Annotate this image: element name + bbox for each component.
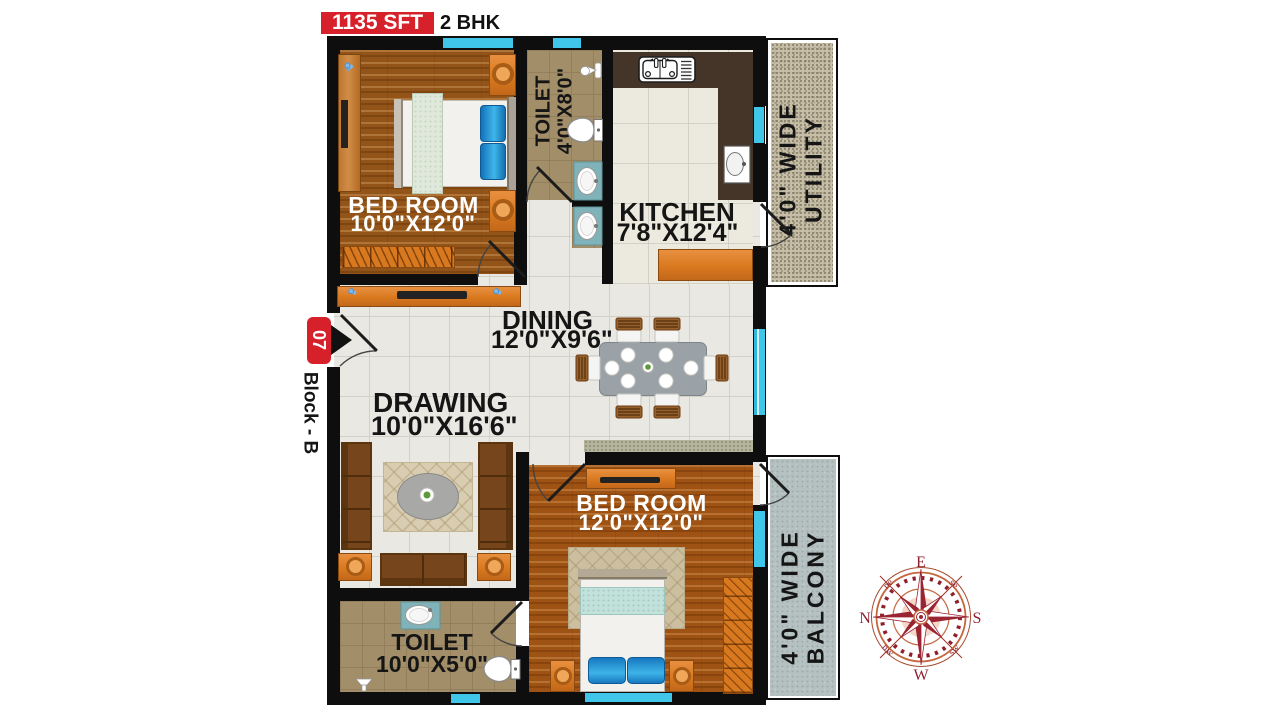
svg-text:S: S [973, 610, 982, 627]
svg-text:W: W [913, 667, 929, 684]
svg-text:E: E [916, 554, 926, 571]
svg-text:N: N [859, 610, 871, 627]
